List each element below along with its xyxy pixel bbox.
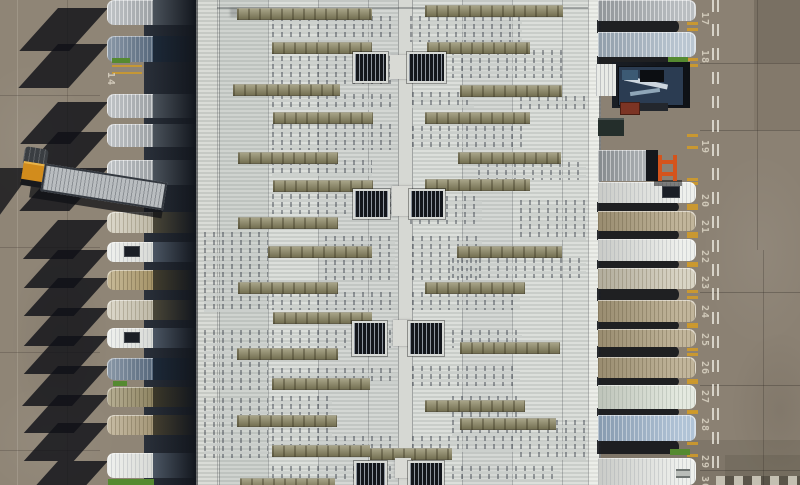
machinery-sheet: [622, 70, 638, 80]
bay-number: 28: [697, 418, 709, 430]
trailer-roof-hatch: [662, 186, 680, 198]
roof-skylight-strip: [272, 445, 370, 457]
concrete-slab-tint: [754, 0, 800, 63]
forklift-rail: [658, 155, 662, 181]
trailer-body: [150, 415, 196, 435]
roof-fastener-rows: [452, 466, 560, 480]
bay-corner-mark: [687, 134, 698, 137]
trailer-top: [598, 32, 696, 57]
roof-fastener-rows: [272, 94, 398, 110]
trailer-top: [598, 385, 696, 409]
bay-number: 30: [697, 476, 709, 485]
grass-sliver: [113, 381, 127, 386]
roof-fastener-rows: [412, 292, 520, 310]
bay-corner-mark: [687, 411, 698, 414]
trailer-body: [150, 36, 196, 62]
trailer-body: [150, 387, 196, 407]
roof-skylight-strip: [370, 448, 452, 460]
roof-skylight-strip: [272, 378, 370, 390]
bay-corner-mark: [687, 28, 698, 31]
bay-number: 18: [697, 50, 709, 62]
roof-skylight-strip: [273, 112, 373, 124]
roof-skylight-strip: [460, 418, 556, 430]
roof-skylight-strip: [233, 84, 340, 96]
roof-louvered-vent: [353, 189, 390, 219]
trailer-nose: [107, 453, 153, 478]
forklift-crossbar: [658, 160, 677, 164]
trailer-nose: [107, 270, 153, 290]
trailer-top: [598, 0, 696, 21]
roof-fastener-rows: [520, 96, 586, 110]
docked-trailer-stub: [596, 64, 616, 96]
trailer-nose: [107, 415, 153, 435]
trailer-body: [150, 242, 196, 262]
trailer-body: [150, 94, 196, 118]
roof-skylight-strip: [425, 400, 525, 412]
trailer-top: [598, 415, 696, 441]
bay-number: 20: [697, 194, 709, 206]
pavement-seam: [17, 0, 18, 485]
trailer-top: [598, 329, 696, 347]
bay-number: 26: [697, 361, 709, 373]
pavement-seam: [700, 292, 800, 293]
roof-fastener-rows: [204, 232, 268, 312]
bay-corner-mark: [687, 296, 698, 299]
roof-skylight-strip: [425, 282, 525, 294]
trailer-roof-hatch: [124, 332, 140, 343]
bay-corner-mark: [687, 381, 698, 384]
roof-seam: [268, 0, 269, 485]
trailer-rear-doors: [646, 150, 658, 181]
roof-skylight-strip: [460, 85, 562, 97]
roof-skylight-strip: [237, 415, 337, 427]
bay-number: 19: [697, 140, 709, 152]
roof-louvered-vent: [352, 321, 387, 356]
roof-louvered-vent: [353, 52, 388, 83]
lane-line-dashed: [717, 0, 719, 476]
equipment-bar: [640, 103, 668, 111]
pavement-seam: [0, 95, 100, 96]
roof-louvered-vent: [408, 321, 444, 356]
roof-fastener-rows: [452, 50, 562, 78]
grass-sliver: [670, 449, 690, 455]
forklift-rail: [673, 155, 677, 181]
roof-fastener-rows: [325, 236, 395, 280]
trailer-nose: [107, 0, 153, 25]
aerial-warehouse-photo: Aerial top-down view of a logistics ware…: [0, 0, 800, 485]
roof-skylight-strip: [238, 217, 338, 229]
trailer-top: [598, 357, 696, 378]
roof-fastener-rows: [272, 124, 398, 150]
bay-corner-mark: [687, 235, 698, 238]
roof-fastener-rows: [452, 258, 586, 278]
bay-number: 27: [697, 390, 709, 402]
trailer-roof-label: [676, 469, 690, 478]
roof-skylight-strip: [268, 246, 372, 258]
red-crate: [620, 102, 640, 115]
trailer-nose: [107, 358, 153, 380]
roof-fastener-rows: [272, 292, 398, 310]
bay-corner-mark: [687, 178, 698, 181]
bay-corner-mark: [687, 348, 698, 351]
pavement-seam: [757, 0, 758, 250]
grass-sliver: [112, 58, 130, 63]
pavement-seam: [700, 385, 800, 386]
roof-fastener-rows: [478, 162, 586, 180]
lane-line-dashed: [712, 0, 714, 476]
roof-seam: [562, 0, 563, 485]
bay-corner-mark: [687, 325, 698, 328]
trailer-nose: [107, 300, 153, 320]
trailer-nose: [107, 387, 153, 407]
yellow-lane-dash: [112, 72, 142, 74]
roof-louvered-vent: [354, 461, 387, 485]
roof-skylight-strip: [460, 342, 560, 354]
trailer-body: [150, 453, 196, 478]
trailer-gap-shadow: [597, 440, 679, 454]
trailer-roof-hatch: [124, 246, 140, 257]
roof-skylight-strip: [425, 5, 563, 17]
machinery-block: [640, 70, 664, 82]
bay-number: 24: [697, 305, 709, 317]
bay-corner-mark: [687, 442, 698, 445]
trailer-body: [150, 124, 196, 147]
bay-corner-mark: [687, 290, 698, 293]
grass-sliver: [108, 479, 154, 485]
pavement-seam: [700, 63, 800, 64]
bay-number: 22: [697, 250, 709, 262]
trailer-body: [150, 270, 196, 290]
roof-fastener-rows: [410, 16, 522, 42]
bay-number: 25: [697, 333, 709, 345]
roof-skylight-strip: [237, 8, 372, 20]
roof-fastener-rows: [412, 126, 522, 148]
roof-skylight-strip: [425, 112, 530, 124]
trailer-body: [150, 358, 196, 380]
bay-number: 14: [103, 72, 115, 84]
roof-fastener-rows: [520, 200, 586, 240]
roof-fastener-rows: [204, 398, 268, 458]
trailer-nose: [107, 94, 153, 118]
roof-skylight-strip: [240, 478, 335, 485]
roof-louvered-vent: [407, 52, 446, 83]
roof-skylight-strip: [458, 152, 561, 164]
bay-corner-mark: [687, 353, 698, 356]
pavement-seam: [700, 470, 800, 471]
crosswalk-markings: [716, 476, 800, 485]
bay-number: 17: [697, 12, 709, 24]
trailer-body: [150, 328, 196, 348]
roof-fastener-rows: [412, 366, 520, 386]
pavement-seam: [763, 250, 764, 485]
forklift-crossbar: [658, 172, 677, 176]
trailer-top: [598, 300, 696, 322]
dumpster: [598, 118, 624, 136]
bay-number: 23: [697, 276, 709, 288]
bay-number: 29: [697, 455, 709, 467]
concrete-slab-tint: [754, 63, 800, 130]
roof-skylight-strip: [238, 282, 338, 294]
trailer-body: [150, 0, 196, 25]
roof-fastener-rows: [204, 330, 268, 390]
bay-corner-mark: [687, 264, 698, 267]
trailer-top: [598, 268, 696, 289]
trailer-body: [150, 300, 196, 320]
roof-louvered-vent: [409, 189, 445, 219]
trailer-top: [598, 211, 696, 231]
bay-number: 21: [697, 220, 709, 232]
trailer-nose: [107, 124, 153, 147]
yellow-lane-dash: [112, 65, 142, 67]
roof-skylight-strip: [238, 152, 338, 164]
bay-corner-mark: [687, 207, 698, 210]
roof-skylight-strip: [457, 246, 562, 258]
roof-louvered-vent: [408, 461, 444, 485]
trailer-top: [598, 239, 696, 261]
roof-skylight-strip: [237, 348, 338, 360]
pavement-seam: [700, 130, 800, 131]
